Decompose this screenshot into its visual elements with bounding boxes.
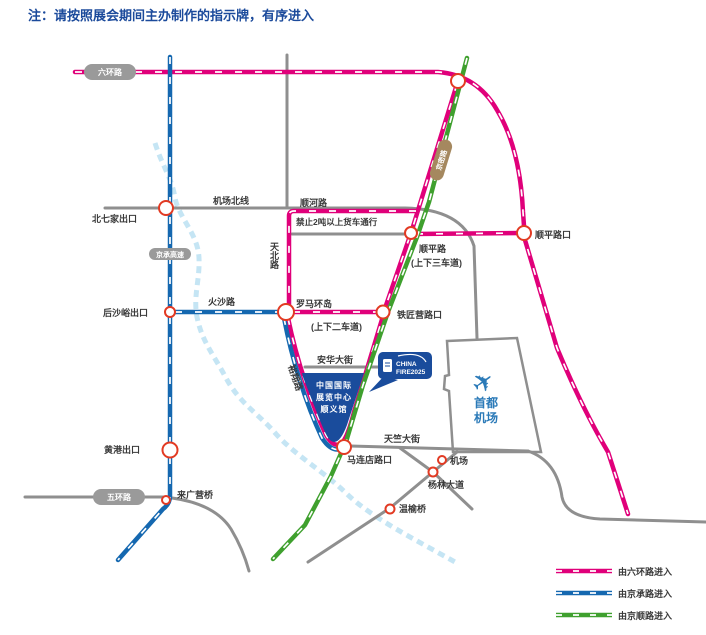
junction-label-houshayu: 后沙峪出口 [103, 307, 148, 318]
venue-name-line3: 顺义馆 [321, 404, 348, 414]
junction-circle-luoma [278, 304, 294, 320]
airport-area: ✈ 首都 机场 [466, 364, 501, 425]
legend-label-pink: 由六环路进入 [618, 566, 672, 577]
pill-wuhuanlu: 五环路 [93, 489, 145, 505]
road-wuhuan-east-curve [172, 498, 249, 571]
legend-label-blue: 由京承路进入 [618, 588, 672, 599]
junction-label-tiejiangying: 铁匠营路口 [397, 309, 442, 320]
junction-circle-yanglin [429, 468, 438, 477]
junction-circle-maliandian [337, 440, 351, 454]
pill-liuhuanlu-label: 六环路 [98, 67, 123, 77]
junction-circle-wenyu [386, 505, 395, 514]
junction-circle-huanggang [163, 443, 178, 458]
road-yanglin-branch [433, 472, 472, 509]
road-tianzhu [350, 446, 528, 451]
junction-label-luoma: 罗马环岛 [296, 298, 332, 309]
junction-circle-beiqijia [159, 201, 173, 215]
junction-label-maliandian: 马连店路口 [347, 454, 392, 465]
road-label-luoma-lanes: (上下二车道) [311, 321, 362, 332]
junction-circle-tiejiangying [377, 306, 390, 319]
venue-name-line1: 中国国际 [316, 380, 352, 390]
pill-jingchenggaosu: 京承高速 [149, 248, 191, 260]
pill-jingchenggaosu-label: 京承高速 [156, 250, 184, 259]
page-title: 注：请按照展会期间主办制作的指示牌，有序进入 [28, 8, 314, 23]
airport-name-line1: 首都 [474, 395, 498, 410]
road-label-anhua: 安华大街 [317, 354, 353, 365]
pill-wuhuanlu-label: 五环路 [107, 492, 132, 502]
road-label-shunping-lanes: (上下三车道) [411, 257, 462, 268]
route-pink-shunping [413, 233, 523, 234]
road-yanglin-link [400, 448, 433, 472]
airport-boundary [444, 338, 541, 452]
pill-liuhuanlu: 六环路 [84, 64, 136, 80]
airport-name-line2: 机场 [474, 410, 498, 425]
junction-label-laiguangying: 来广营桥 [176, 489, 214, 500]
logo-badge: CHINA FIRE2025 [369, 352, 432, 392]
junction-circle-houshayu [165, 307, 175, 317]
junction-label-beiqijia: 北七家出口 [92, 213, 137, 224]
junction-label-yanglin: 杨林大道 [428, 479, 464, 490]
junction-label-huanggang: 黄港出口 [104, 444, 140, 455]
junction-circle-top [451, 74, 465, 88]
junction-circle-shunpingkou [517, 226, 531, 240]
road-label-shunpinglu: 顺平路 [419, 243, 447, 254]
road-label-jichangbeixian: 机场北线 [213, 195, 249, 206]
junction-label-wenyu: 温榆桥 [399, 503, 427, 514]
legend: 由六环路进入 由京承路进入 由京顺路进入 [556, 566, 672, 621]
road-label-shunhelu: 顺河路 [300, 197, 328, 208]
venue-name-line2: 展览中心 [315, 392, 352, 402]
logo-text-line1: CHINA [396, 361, 417, 368]
junction-label-shunpingkou: 顺平路口 [535, 229, 571, 240]
logo-text-line2: FIRE2025 [396, 369, 426, 376]
road-label-huoshalu: 火沙路 [208, 296, 236, 307]
direction-map: 注：请按照展会期间主办制作的指示牌，有序进入 中国国际 展览中心 顺义馆 [0, 0, 706, 635]
junction-circle-jichang [438, 456, 446, 464]
road-label-tianbeilu: 天北路 [269, 242, 280, 270]
truck-ban-notice: 禁止2吨以上货车通行 [295, 217, 378, 227]
road-label-tianzhu: 天竺大街 [384, 433, 420, 444]
legend-label-green: 由京顺路进入 [618, 610, 672, 621]
junction-label-jichang: 机场 [450, 455, 468, 466]
junction-circle-shunping-west [405, 227, 417, 239]
junction-circle-laiguangying [162, 496, 170, 504]
map-canvas: 注：请按照展会期间主办制作的指示牌，有序进入 中国国际 展览中心 顺义馆 [0, 0, 706, 635]
